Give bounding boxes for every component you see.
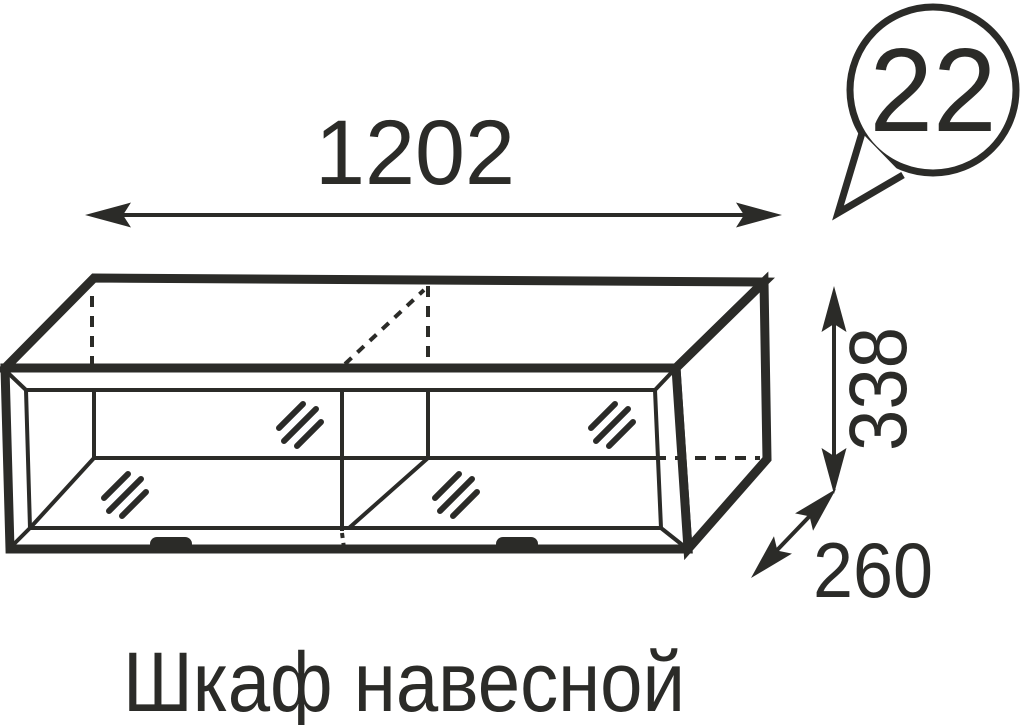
cabinet-top-face (5, 278, 764, 368)
height-dimension-label: 338 (833, 327, 924, 451)
cabinet-drawing (5, 278, 767, 551)
item-number-callout: 22 (838, 7, 1016, 213)
door-handle-left (150, 537, 192, 551)
caption: Шкаф навесной (123, 635, 685, 725)
callout-number: 22 (870, 24, 997, 157)
technical-drawing-page: 1202 338 260 22 Шкаф навесной (0, 0, 1024, 725)
door-handle-right (496, 537, 538, 551)
furniture-diagram-canvas: 1202 338 260 22 Шкаф навесной (0, 0, 1024, 725)
depth-dimension: 260 (742, 480, 933, 614)
width-dimension: 1202 (85, 102, 782, 228)
height-dimension: 338 (822, 286, 925, 494)
depth-dimension-label: 260 (813, 526, 933, 614)
width-dimension-label: 1202 (315, 102, 515, 204)
